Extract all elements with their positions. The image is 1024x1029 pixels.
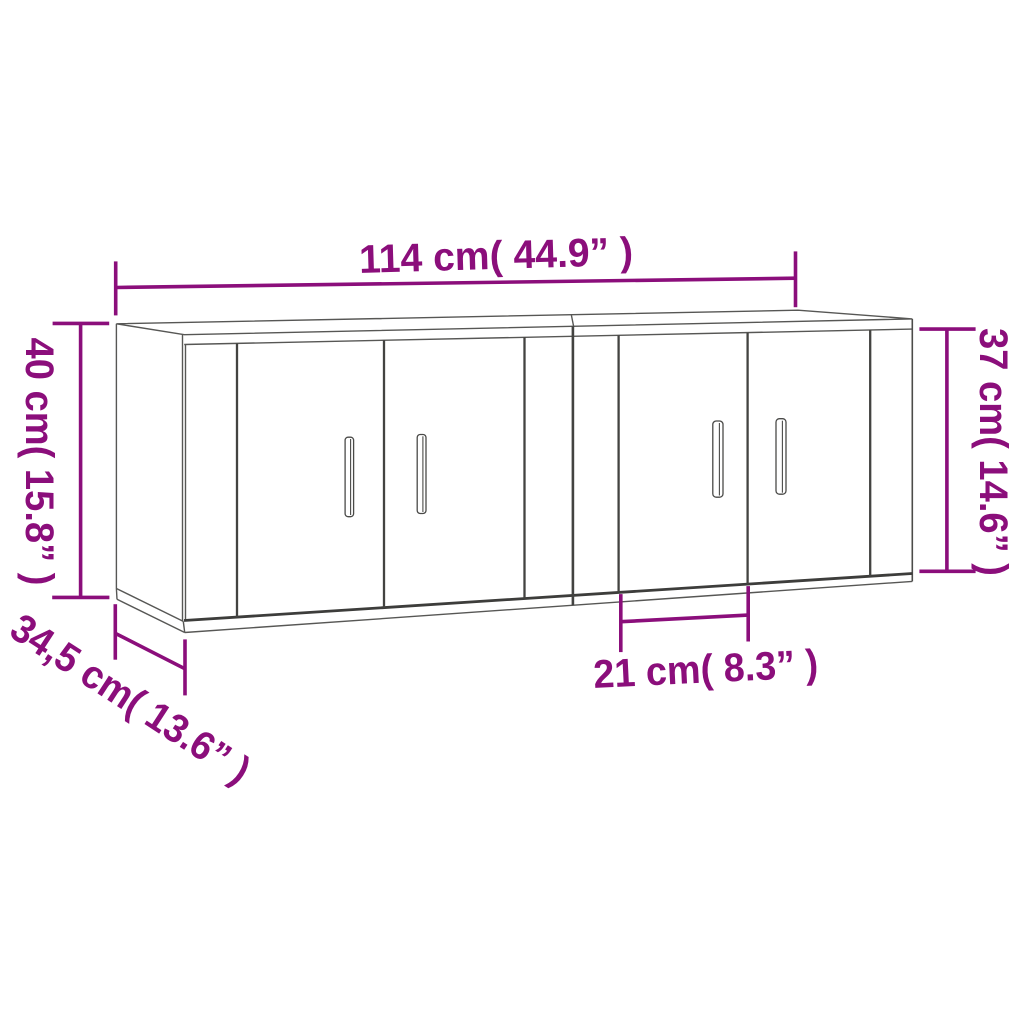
- svg-text:40 cm( 15.8” ): 40 cm( 15.8” ): [17, 338, 61, 586]
- svg-text:114 cm( 44.9” ): 114 cm( 44.9” ): [358, 230, 633, 282]
- svg-text:37 cm( 14.6” ): 37 cm( 14.6” ): [971, 328, 1015, 576]
